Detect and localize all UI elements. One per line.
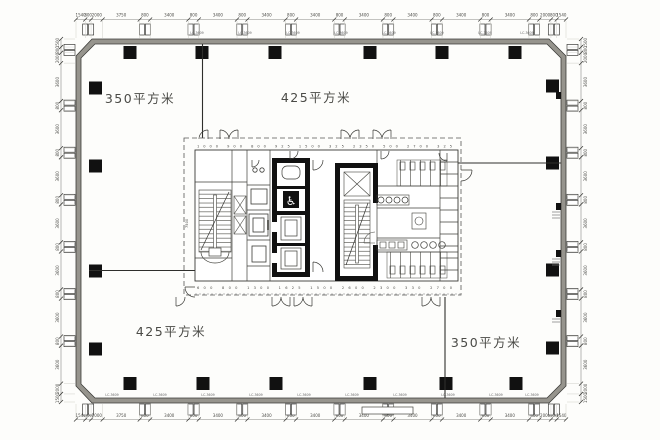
dimension-label: 2000	[583, 52, 588, 63]
area-label-top-center: 425平方米	[281, 90, 351, 105]
window-tag-label: LC-3609	[105, 393, 118, 397]
window-tag-label: LC-3609	[478, 31, 491, 35]
dimension-strip-bottom: 1540800200037508003400800340080034008003…	[74, 404, 568, 422]
window-tag-label: LC-3609	[520, 31, 533, 35]
dimension-label: 800	[190, 13, 198, 18]
drawing-sheet: 1540800200037508003400800340080034008003…	[0, 0, 660, 440]
dimension-label: 3600	[55, 124, 60, 135]
dimension-label: 3400	[164, 413, 175, 418]
core-dims-top: 1000 900 800 925 1500 325 2350 500 2700 …	[197, 144, 452, 148]
dimension-label: 3600	[583, 77, 588, 88]
window-tag-label: LC-3609	[249, 393, 262, 397]
dimension-label: 800	[482, 13, 490, 18]
dimension-label: 3400	[310, 413, 321, 418]
dimension-strip-right: 1500800200036008003600800360080036008003…	[567, 37, 588, 404]
dimension-label: 3600	[55, 218, 60, 229]
core-dim-left: 7500	[185, 218, 189, 228]
dimension-label: 800	[583, 101, 588, 109]
dimension-label: 3750	[116, 13, 127, 18]
dimension-label: 3400	[261, 413, 272, 418]
window-tag-label: LC-3609	[382, 31, 395, 35]
dimension-label: 3600	[583, 124, 588, 135]
dimension-label: 3400	[407, 13, 418, 18]
bottom-note-box	[362, 407, 413, 414]
dimension-label: 3600	[583, 359, 588, 370]
window-tag-label: LC-3609	[297, 393, 310, 397]
stair-left	[199, 190, 231, 263]
window-tag-label: LC-3609	[430, 31, 443, 35]
window-tag-label: LC-3609	[345, 393, 358, 397]
window-tag-label: LC-3609	[286, 31, 299, 35]
dimension-label: 800	[583, 46, 588, 54]
wheelchair-icon: ♿	[286, 194, 297, 208]
dimension-strip-left: 1500800200036008003600800360080036008003…	[55, 37, 75, 404]
dimension-label: 3400	[505, 13, 516, 18]
dimension-label: 3400	[456, 13, 467, 18]
window-tag-label: LC-3609	[190, 31, 203, 35]
dimension-label: 3600	[583, 218, 588, 229]
dimension-label: 3600	[55, 265, 60, 276]
dimension-label: 800	[583, 243, 588, 251]
area-label-bottom-left: 425平方米	[136, 324, 206, 339]
dimension-label: 3400	[359, 13, 370, 18]
dimension-label: 800	[287, 13, 295, 18]
dimension-label: 800	[384, 13, 392, 18]
dimension-strip-top: 1540800200037508003400800340080034008003…	[74, 13, 568, 39]
dimension-label: 800	[55, 46, 60, 54]
dimension-label: 1500	[55, 392, 60, 403]
area-label-top-left: 350平方米	[105, 91, 175, 106]
dimension-label: 3400	[261, 13, 272, 18]
dimension-label: 800	[530, 13, 538, 18]
dimension-label: 2000	[55, 383, 60, 394]
window-tag-label: LC-3609	[238, 31, 251, 35]
dimension-label: 1540	[556, 413, 567, 418]
window-tag-label: LC-3609	[334, 31, 347, 35]
dimension-label: 3600	[55, 312, 60, 323]
dimension-label: 3400	[456, 413, 467, 418]
dimension-label: 2000	[92, 413, 103, 418]
dimension-label: 2000	[92, 13, 103, 18]
dimension-label: 3400	[164, 13, 175, 18]
right-wall-marks	[552, 92, 561, 322]
floor-plan-drawing: 1540800200037508003400800340080034008003…	[0, 0, 660, 440]
dimension-label: 3600	[55, 77, 60, 88]
dimension-label: 3400	[213, 13, 224, 18]
dimension-label: 3600	[583, 312, 588, 323]
window-tag-label: LC-3609	[525, 393, 538, 397]
dimension-label: 800	[583, 196, 588, 204]
dimension-label: 3600	[583, 265, 588, 276]
dimension-label: 3400	[310, 13, 321, 18]
dimension-label: 800	[583, 148, 588, 156]
dimension-label: 1540	[556, 13, 567, 18]
window-tag-label: LC-3609	[393, 393, 406, 397]
dimension-label: 800	[238, 13, 246, 18]
dimension-label: 800	[583, 290, 588, 298]
dimension-label: 800	[433, 13, 441, 18]
dimension-label: 3400	[505, 413, 516, 418]
dimension-label: 1500	[583, 392, 588, 403]
dimension-label: 800	[336, 13, 344, 18]
dimension-label: 3750	[116, 413, 127, 418]
dimension-label: 3600	[583, 171, 588, 182]
dimension-label: 2000	[583, 383, 588, 394]
window-tag-label: LC-3609	[153, 393, 166, 397]
core-dims-bottom: 600 800 1300 1625 1500 2600 2300 330 270…	[197, 286, 453, 290]
window-tag-label: LC-3609	[441, 393, 454, 397]
core: ♿	[176, 130, 472, 306]
dimension-label: 3600	[55, 359, 60, 370]
dimension-label: 3600	[55, 171, 60, 182]
dimension-label: 2000	[55, 52, 60, 63]
area-label-bottom-right: 350平方米	[451, 335, 521, 350]
window-tag-label: LC-3609	[201, 393, 214, 397]
dimension-label: 3400	[213, 413, 224, 418]
dimension-label: 800	[141, 13, 149, 18]
dimension-label: 800	[583, 337, 588, 345]
window-tag-label: LC-3609	[489, 393, 502, 397]
